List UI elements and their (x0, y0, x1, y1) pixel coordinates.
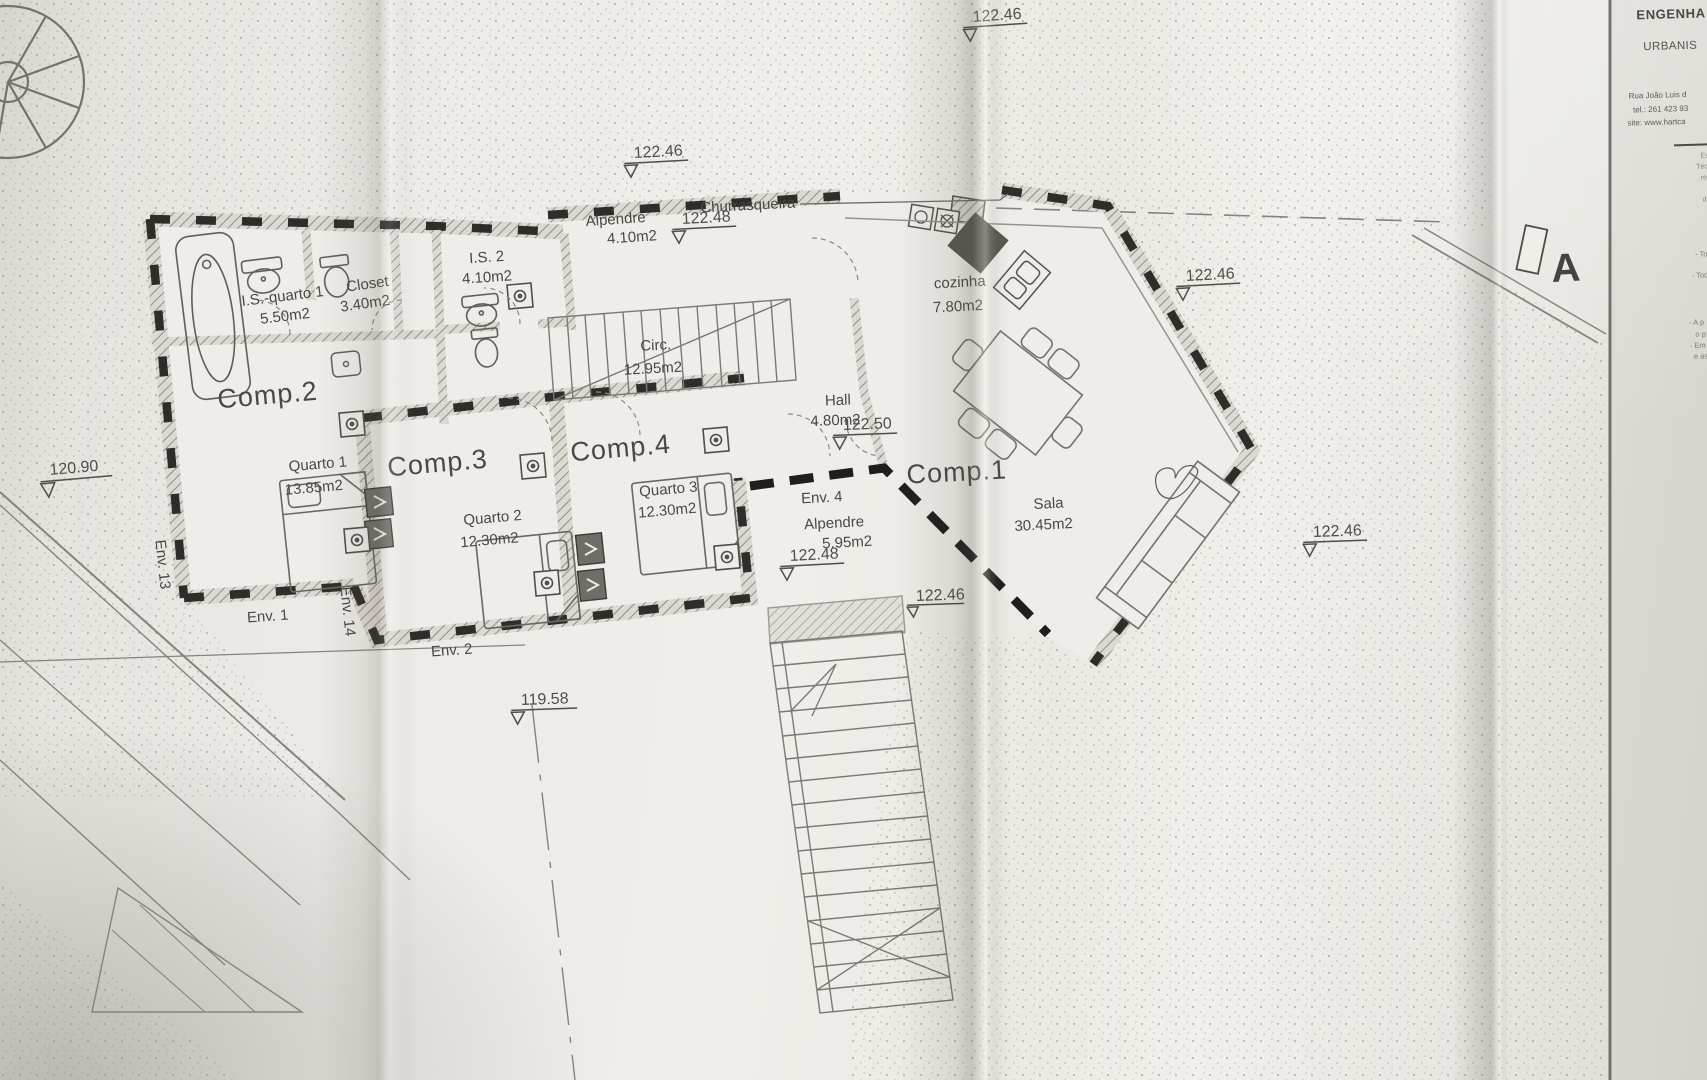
label-env4: Env. 4 Alpendre 5.95m2 (801, 487, 873, 554)
svg-text:122.48: 122.48 (681, 208, 731, 228)
svg-text:30.45m2: 30.45m2 (1014, 515, 1073, 535)
title-block-divider (1674, 143, 1707, 147)
svg-text:122.50: 122.50 (843, 415, 893, 434)
svg-text:4.10m2: 4.10m2 (606, 227, 657, 247)
note-line: o p (1695, 330, 1706, 339)
floor-plan-drawing: A Comp.2 Quarto 1 13.85m2 Comp.3 Quarto … (0, 0, 1707, 1080)
note-line: - Toda (1692, 270, 1707, 280)
svg-text:12.95m2: 12.95m2 (623, 359, 682, 379)
fine-print: Este d Técnico reprod sem direito (1616, 150, 1707, 208)
label-env2: Env. 2 (430, 641, 473, 661)
svg-text:Alpendre: Alpendre (804, 513, 865, 533)
level-marker: 122.48 (779, 545, 845, 580)
note-line: - A p (1689, 318, 1704, 327)
site-line: site: www.hartca (1627, 117, 1685, 128)
svg-text:Env. 4: Env. 4 (801, 488, 843, 507)
svg-text:Hall: Hall (825, 392, 851, 410)
firm-subheading: URBANIS (1643, 40, 1697, 54)
svg-text:I.S. 2: I.S. 2 (469, 248, 505, 267)
note-line: - Tod (1695, 249, 1707, 258)
svg-text:119.58: 119.58 (521, 690, 569, 709)
svg-text:122.46: 122.46 (1185, 265, 1235, 285)
floor-plan-photo: A Comp.2 Quarto 1 13.85m2 Comp.3 Quarto … (0, 0, 1707, 1080)
address-line: Rua João Luis d (1629, 90, 1687, 101)
firm-heading: ENGENHA (1636, 5, 1706, 22)
svg-text:Sala: Sala (1033, 494, 1065, 513)
svg-text:122.46: 122.46 (633, 142, 683, 162)
note-line: e as (1694, 351, 1707, 360)
note-line: - Em (1690, 341, 1706, 350)
svg-text:122.48: 122.48 (789, 545, 839, 565)
svg-text:122.46: 122.46 (1313, 522, 1363, 541)
section-marker-label: A (1550, 246, 1581, 291)
tel-line: tel.: 261 423 93 (1633, 104, 1688, 115)
label-env1: Env. 1 (246, 607, 289, 627)
level-marker: 119.58 (511, 690, 578, 724)
section-marker: A (1516, 225, 1581, 291)
svg-text:Circ.: Circ. (640, 336, 672, 355)
svg-text:4.10m2: 4.10m2 (462, 267, 513, 287)
